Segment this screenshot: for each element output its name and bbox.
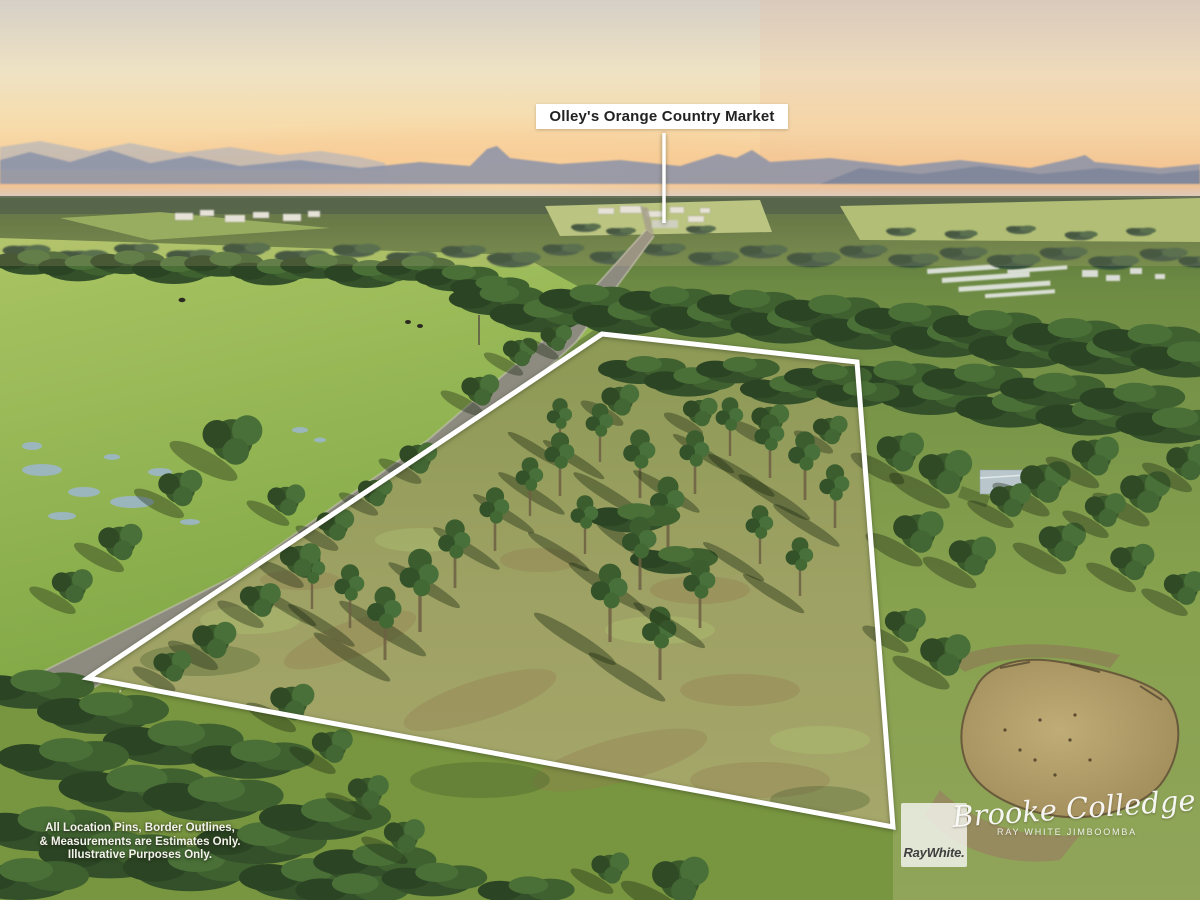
agent-credit: Brooke Colledge RAY WHITE JIMBOOMBA — [952, 792, 1182, 837]
aerial-photo — [0, 0, 1200, 900]
raywhite-logo-text: RayWhite. — [903, 845, 964, 860]
listing-photo-frame: Olley's Orange Country Market All Locati… — [0, 0, 1200, 900]
disclaimer-text: All Location Pins, Border Outlines, & Me… — [38, 822, 242, 863]
disclaimer-line-1: All Location Pins, Border Outlines, — [38, 822, 242, 836]
disclaimer-line-3: Illustrative Purposes Only. — [38, 849, 242, 863]
disclaimer-line-2: & Measurements are Estimates Only. — [38, 836, 242, 850]
poi-label: Olley's Orange Country Market — [536, 104, 788, 129]
horizon-glow — [0, 196, 1200, 266]
